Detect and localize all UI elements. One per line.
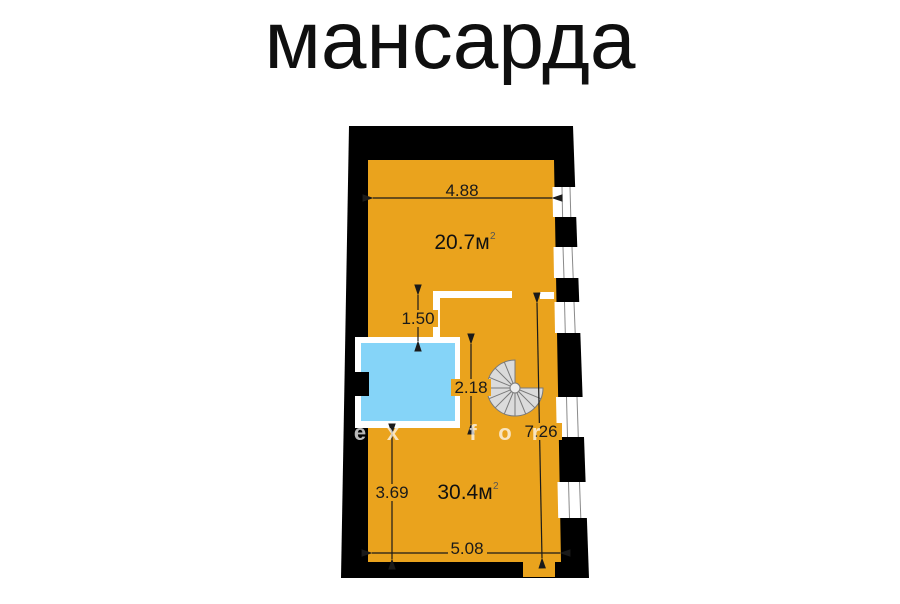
partition-wall-horizontal [438,291,512,298]
floor-plan: 4.88 1.50 2.18 7.26 3.69 [0,0,900,604]
wall-pilaster [347,372,369,396]
window-2 [554,247,583,278]
dimension-label: 7.26 [524,422,557,441]
page-title: мансарда [0,0,900,82]
stair-opening [361,343,455,421]
room-area-sup: 2 [490,231,496,242]
staircase-hub [510,383,520,393]
dimension-label: 3.69 [375,483,408,502]
partition-wall-stub [540,292,554,299]
watermark-letter: r [532,420,541,445]
room-area-text: 20.7м [434,231,489,254]
room-label-lower: 30.4м 2 [437,481,499,504]
watermark-letter: x [387,420,400,445]
room-area-text: 30.4м [437,481,492,504]
dimension-label: 2.18 [454,378,487,397]
room-label-upper: 20.7м 2 [434,231,496,254]
page: мансарда [0,0,900,604]
window-5 [558,482,592,518]
watermark-letter: o [498,420,511,445]
dimension-label: 5.08 [450,539,483,558]
dimension-label: 1.50 [401,309,434,328]
dimension-label: 4.88 [445,181,478,200]
watermark-letter: e [354,420,366,445]
watermark-letter: f [469,420,477,445]
room-area-sup: 2 [493,481,499,492]
window-1 [553,187,581,217]
window-3 [555,302,585,333]
